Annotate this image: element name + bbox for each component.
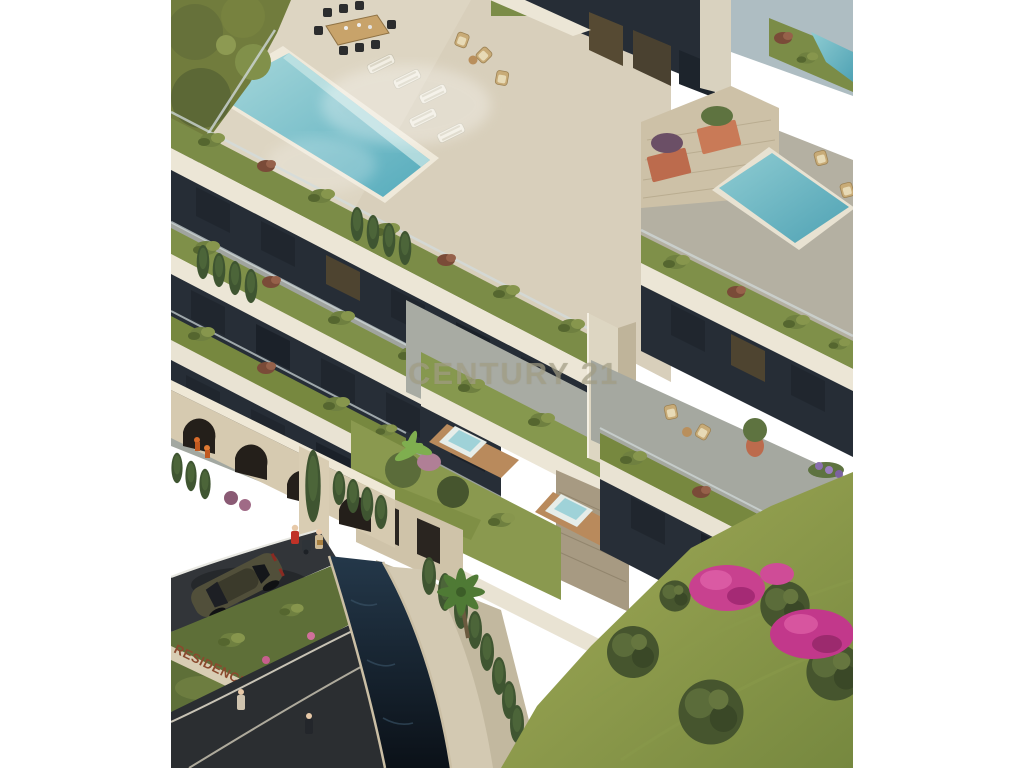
- pot-plant: [743, 418, 767, 442]
- planter-shrub: [701, 106, 733, 126]
- deck-haze: [321, 65, 491, 145]
- wicker-chair: [495, 70, 509, 86]
- side-table: [469, 56, 478, 65]
- median-flowers: [307, 632, 315, 640]
- olive-tree: [679, 680, 744, 745]
- render-scene: RESIDENCE: [171, 0, 853, 768]
- property-render-image: RESIDENCE: [171, 0, 853, 768]
- wicker-chair: [664, 404, 679, 420]
- olive-tree: [607, 626, 659, 678]
- screenshot-canvas: RESIDENCE: [0, 0, 1024, 768]
- olive-tree: [659, 580, 690, 611]
- side-table: [682, 427, 692, 437]
- cream-column: [700, 0, 731, 96]
- gate-cypress: [305, 450, 320, 522]
- median-flowers: [262, 656, 270, 664]
- purple-flower-ledge: [808, 462, 844, 478]
- planter-shrub: [651, 133, 683, 153]
